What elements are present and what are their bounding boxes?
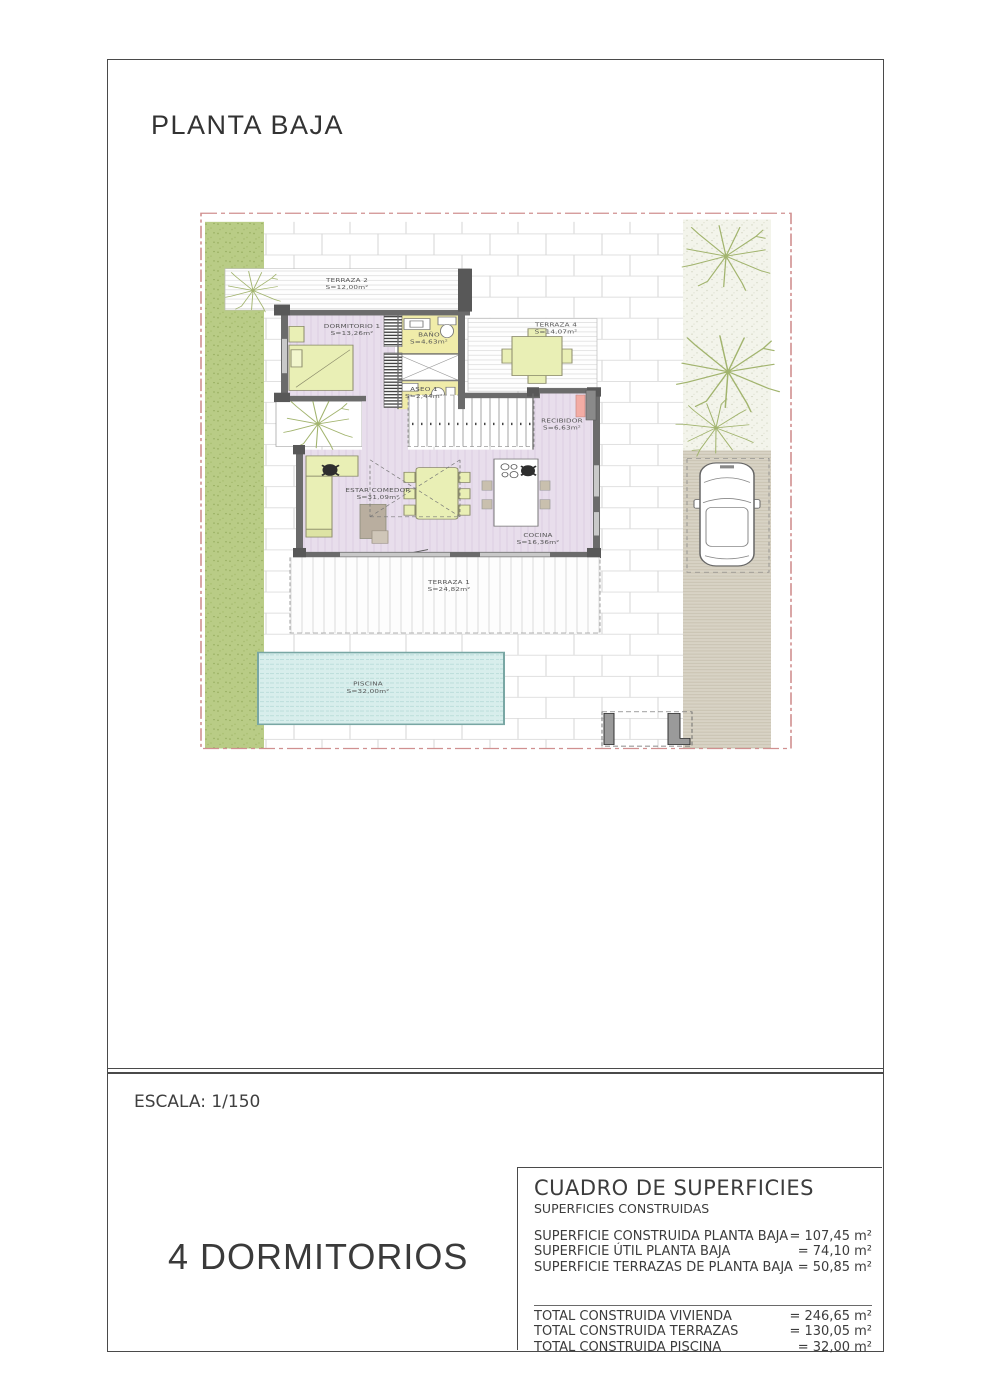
- row-label: SUPERFICIE CONSTRUIDA PLANTA BAJA: [534, 1229, 788, 1244]
- page-title: PLANTA BAJA: [151, 110, 344, 141]
- surfaces-rows: SUPERFICIE CONSTRUIDA PLANTA BAJA = 107,…: [534, 1229, 872, 1275]
- table-row: SUPERFICIE TERRAZAS DE PLANTA BAJA = 50,…: [534, 1260, 872, 1275]
- floor-plan: TERRAZA 2 S=12,00m² DORMITORIO 1 S=13,26…: [190, 200, 800, 910]
- room-label-area: S=12,00m²: [326, 284, 369, 291]
- row-label: SUPERFICIE ÚTIL PLANTA BAJA: [534, 1244, 767, 1259]
- surfaces-table: CUADRO DE SUPERFICIES SUPERFICIES CONSTR…: [517, 1167, 882, 1350]
- title-block-divider-2: [107, 1072, 883, 1074]
- tv-cabinet: [360, 504, 388, 543]
- wardrobes: [384, 315, 402, 407]
- room-label-name: ESTAR COMEDOR: [345, 487, 411, 494]
- room-label-area: S=14,07m²: [535, 328, 578, 335]
- row-label: TOTAL CONSTRUIDA PISCINA: [534, 1340, 767, 1355]
- stairs: [408, 395, 534, 446]
- room-label-area: S=6,63m²: [543, 424, 581, 431]
- room-label-name: TERRAZA 4: [534, 321, 577, 328]
- courtyard-patio: [276, 400, 362, 451]
- surfaces-title: CUADRO DE SUPERFICIES: [534, 1176, 882, 1200]
- toilet-icon: [441, 324, 454, 337]
- terraza1-deck: [290, 557, 600, 633]
- row-label: SUPERFICIE TERRAZAS DE PLANTA BAJA: [534, 1260, 793, 1275]
- outdoor-table: [502, 329, 572, 384]
- room-label-area: S=2,44m²: [405, 393, 443, 400]
- table-row: TOTAL CONSTRUIDA TERRAZAS = 130,05 m²: [534, 1324, 872, 1339]
- room-label-area: S=4,63m²: [410, 338, 448, 345]
- room-label-name: COCINA: [523, 532, 553, 539]
- room-label-name: DORMITORIO 1: [324, 323, 381, 330]
- room-label-name: ASEO 1: [410, 386, 438, 393]
- surfaces-totals: TOTAL CONSTRUIDA VIVIENDA = 246,65 m² TO…: [534, 1309, 872, 1355]
- room-label-name: TERRAZA 1: [427, 579, 470, 586]
- table-row: SUPERFICIE ÚTIL PLANTA BAJA = 74,10 m²: [534, 1244, 872, 1259]
- room-label-area: S=16,36m²: [517, 539, 560, 546]
- sink-basin: [410, 321, 423, 327]
- row-value: = 50,85 m²: [793, 1260, 872, 1275]
- totals-divider: [534, 1305, 872, 1306]
- table-row: TOTAL CONSTRUIDA PISCINA = 32,00 m²: [534, 1340, 872, 1355]
- room-label-area: S=32,00m²: [347, 688, 390, 695]
- row-value: = 130,05 m²: [767, 1324, 872, 1339]
- title-block-divider: [107, 1068, 883, 1069]
- row-value: = 32,00 m²: [767, 1340, 872, 1355]
- toilet-tank: [438, 317, 456, 325]
- front-door: [576, 395, 585, 417]
- room-label-area: S=24,82m²: [428, 586, 471, 593]
- person-sofa: [322, 465, 339, 476]
- room-label-name: BAÑO: [418, 330, 440, 338]
- row-label: TOTAL CONSTRUIDA TERRAZAS: [534, 1324, 767, 1339]
- room-label-name: PISCINA: [353, 680, 383, 687]
- room-label-area: S=31,09m²: [357, 494, 400, 501]
- room-label-name: TERRAZA 2: [325, 277, 368, 284]
- plan-sheet-page: PLANTA BAJA: [0, 0, 989, 1400]
- table-row: SUPERFICIE CONSTRUIDA PLANTA BAJA = 107,…: [534, 1229, 872, 1244]
- row-value: = 107,45 m²: [788, 1229, 872, 1244]
- terraza4-deck: [468, 319, 597, 392]
- person-kitchen: [521, 466, 536, 475]
- hall-cabinet: [586, 390, 596, 420]
- row-value: = 246,65 m²: [767, 1309, 872, 1324]
- table-row: TOTAL CONSTRUIDA VIVIENDA = 246,65 m²: [534, 1309, 872, 1324]
- room-label-name: RECIBIDOR: [541, 417, 583, 424]
- row-value: = 74,10 m²: [767, 1244, 872, 1259]
- bedrooms-label: 4 DORMITORIOS: [168, 1236, 468, 1278]
- room-label-area: S=13,26m²: [331, 330, 374, 337]
- scale-label: ESCALA: 1/150: [134, 1092, 260, 1112]
- surfaces-subtitle: SUPERFICIES CONSTRUIDAS: [534, 1201, 882, 1216]
- row-label: TOTAL CONSTRUIDA VIVIENDA: [534, 1309, 767, 1324]
